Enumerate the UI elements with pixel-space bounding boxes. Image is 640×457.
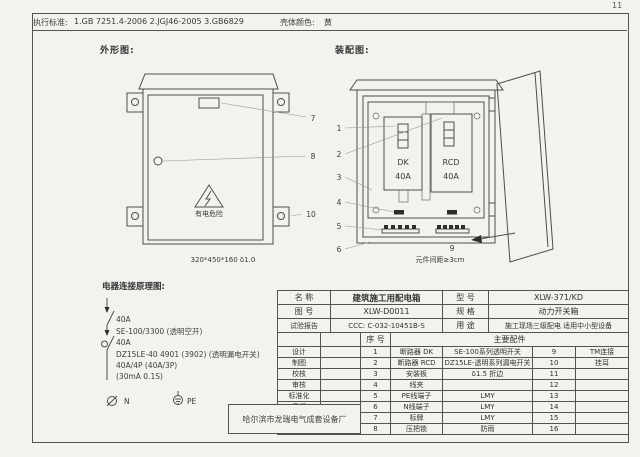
table-row: 标准化 5 PE线端子 LMY 13 xyxy=(278,391,629,402)
sign-cell xyxy=(321,369,361,380)
sign-label: 设计 xyxy=(278,347,321,358)
part-name2: TM连接 xyxy=(576,347,629,358)
part-name: 断路器 DK xyxy=(391,347,443,358)
part-no: 5 xyxy=(361,391,391,402)
cabinet-body xyxy=(143,89,273,244)
neutral-terminal-icon xyxy=(107,396,117,406)
callout-4: 4 xyxy=(337,198,342,207)
part-name: 断路器 RCD xyxy=(391,358,443,369)
part-name2 xyxy=(576,380,629,391)
sign-cell xyxy=(321,347,361,358)
cable-clamp-right xyxy=(447,210,457,215)
standards-header: 执行标准: 1.GB 7251.4-2006 2.JGJ46-2005 3.GB… xyxy=(32,13,627,31)
callout-9: 9 xyxy=(450,244,455,253)
rcd-label: RCD xyxy=(443,158,460,167)
part-no2: 12 xyxy=(533,380,576,391)
standards-label: 执行标准: xyxy=(33,17,68,28)
assembly-figure-title: 装配图: xyxy=(335,43,370,56)
spec-value: 动力开关箱 xyxy=(489,305,629,319)
seq-header: 序 号 xyxy=(361,333,391,347)
callout-5: 5 xyxy=(337,222,342,231)
open-door xyxy=(497,71,553,262)
sign-label: 校核 xyxy=(278,369,321,380)
callout-2: 2 xyxy=(337,150,342,159)
cabinet-roof xyxy=(350,80,503,90)
hinge-bottom xyxy=(489,203,495,216)
blank-cell xyxy=(321,333,361,347)
name-label: 名 称 xyxy=(278,291,331,305)
company-name: 哈尔滨市龙瑞电气成套设备厂 xyxy=(243,414,347,425)
part-no: 8 xyxy=(361,424,391,435)
part-no: 2 xyxy=(361,358,391,369)
terminal-strip-left xyxy=(382,225,419,233)
part-spec: DZ15LE-透明系列漏电开关 xyxy=(443,358,533,369)
part-spec: LMY xyxy=(443,413,533,424)
part-no2: 13 xyxy=(533,391,576,402)
callout-7: 7 xyxy=(311,114,316,123)
part-spec xyxy=(443,380,533,391)
part-name2 xyxy=(576,402,629,413)
part-no: 1 xyxy=(361,347,391,358)
part-name: 标牌 xyxy=(391,413,443,424)
assembly-drawing: DK 40A RCD 40A xyxy=(330,60,628,272)
test-report-label: 试验报告 xyxy=(278,319,331,333)
spec-table-header: 名 称 建筑施工用配电箱 型 号 XLW-371/KD 图 号 XLW-D001… xyxy=(277,290,629,333)
box-inner xyxy=(363,96,489,237)
part-name2 xyxy=(576,424,629,435)
shell-color-label: 壳体颜色: xyxy=(280,17,315,28)
table-row: 序 号 主要配件 xyxy=(278,333,629,347)
table-row: 图 号 XLW-D0011 规 格 动力开关箱 xyxy=(278,305,629,319)
model-value: XLW-371/KD xyxy=(489,291,629,305)
part-spec: δ1.5 折边 xyxy=(443,369,533,380)
company-name-box: 哈尔滨市龙瑞电气成套设备厂 xyxy=(228,404,361,434)
part-no2: 14 xyxy=(533,402,576,413)
part-no: 7 xyxy=(361,413,391,424)
door-lock xyxy=(154,157,162,165)
product-name: 建筑施工用配电箱 xyxy=(331,291,443,305)
part-no: 4 xyxy=(361,380,391,391)
part-spec: LMY xyxy=(443,391,533,402)
part-spec: SE-100系列透明开关 xyxy=(443,347,533,358)
electric-hazard-icon xyxy=(195,185,223,207)
shell-color-value: 黄 xyxy=(324,17,332,28)
sign-cell xyxy=(321,391,361,402)
sign-cell xyxy=(321,380,361,391)
callout-10: 10 xyxy=(306,210,316,219)
part-no2: 10 xyxy=(533,358,576,369)
part-no: 3 xyxy=(361,369,391,380)
outline-drawing: 有电危险 7 8 10 320*450*160 δ1.0 xyxy=(95,60,325,272)
table-row: 设计 1 断路器 DK SE-100系列透明开关 9 TM连接 xyxy=(278,347,629,358)
model-label: 型 号 xyxy=(443,291,489,305)
spec-table-subheader: 序 号 主要配件 xyxy=(277,332,629,347)
cabinet-door xyxy=(148,95,263,240)
parts-header: 主要配件 xyxy=(391,333,629,347)
table-row: 校核 3 安装板 δ1.5 折边 11 xyxy=(278,369,629,380)
part-name2 xyxy=(576,413,629,424)
page-number: 11 xyxy=(612,1,622,10)
sign-label: 标准化 xyxy=(278,391,321,402)
use-label: 用 途 xyxy=(443,319,489,333)
callout-8: 8 xyxy=(311,152,316,161)
table-row: 审核 4 线夹 12 xyxy=(278,380,629,391)
part-name: 线夹 xyxy=(391,380,443,391)
breaker-symbol-chain xyxy=(102,298,115,380)
dk-rating: 40A xyxy=(395,172,411,181)
schematic-line-4: DZ15LE-40 4901 (3902) (透明漏电开关) xyxy=(116,349,260,360)
standards-value: 1.GB 7251.4-2006 2.JGJ46-2005 3.GB6829 xyxy=(74,17,244,26)
table-row: 名 称 建筑施工用配电箱 型 号 XLW-371/KD xyxy=(278,291,629,305)
use-value: 施工现场三级配电 适用中小型设备 xyxy=(489,319,629,333)
terminal-strip-right xyxy=(436,225,469,233)
neutral-label: N xyxy=(124,397,130,406)
callout-1: 1 xyxy=(337,124,342,133)
part-spec: 防雨 xyxy=(443,424,533,435)
sign-cell xyxy=(321,358,361,369)
pe-label: PE xyxy=(187,397,197,406)
outline-dimension: 320*450*160 δ1.0 xyxy=(191,256,256,264)
dk-label: DK xyxy=(397,158,409,167)
part-name2 xyxy=(576,369,629,380)
schematic-line-3: 40A xyxy=(116,338,131,347)
part-no2: 15 xyxy=(533,413,576,424)
warning-text: 有电危险 xyxy=(195,209,223,218)
table-row: 制图 2 断路器 RCD DZ15LE-透明系列漏电开关 10 挂耳 xyxy=(278,358,629,369)
spec-label: 规 格 xyxy=(443,305,489,319)
part-no: 6 xyxy=(361,402,391,413)
cabinet-roof xyxy=(139,74,278,89)
drawing-no-label: 图 号 xyxy=(278,305,331,319)
part-no2: 11 xyxy=(533,369,576,380)
schematic-line-5: 40A/4P (40A/3P) xyxy=(116,361,177,370)
part-name: 压把锁 xyxy=(391,424,443,435)
table-row: 试验报告 CCC: C-032-10451B-S 用 途 施工现场三级配电 适用… xyxy=(278,319,629,333)
part-name2: 挂耳 xyxy=(576,358,629,369)
callout-3: 3 xyxy=(337,173,342,182)
callout-6: 6 xyxy=(337,245,342,254)
part-no2: 16 xyxy=(533,424,576,435)
spacing-note: 元件间距≥3cm xyxy=(416,255,465,264)
schematic-line-6: (30mA 0.1S) xyxy=(116,372,163,381)
part-name: 安装板 xyxy=(391,369,443,380)
schematic-line-2: SE-100/3300 (透明空开) xyxy=(116,326,202,337)
mounting-panel xyxy=(368,102,484,218)
pe-terminal-icon xyxy=(174,391,183,405)
rcd-rating: 40A xyxy=(443,172,459,181)
blank-cell xyxy=(278,333,321,347)
drawing-sheet: 11 执行标准: 1.GB 7251.4-2006 2.JGJ46-2005 3… xyxy=(0,0,640,457)
schematic-title: 电器连接原理图: xyxy=(102,280,165,292)
hinge-top xyxy=(489,98,495,111)
part-spec: LMY xyxy=(443,402,533,413)
cable-clamp-left xyxy=(394,210,404,215)
outline-figure-title: 外形图: xyxy=(100,43,135,56)
sign-label: 审核 xyxy=(278,380,321,391)
part-name: N线端子 xyxy=(391,402,443,413)
part-name2 xyxy=(576,391,629,402)
test-report-value: CCC: C-032-10451B-S xyxy=(331,319,443,333)
nameplate xyxy=(199,98,219,108)
sign-label: 制图 xyxy=(278,358,321,369)
schematic-line-1: 40A xyxy=(116,315,131,324)
drawing-no-value: XLW-D0011 xyxy=(331,305,443,319)
part-no2: 9 xyxy=(533,347,576,358)
part-name: PE线端子 xyxy=(391,391,443,402)
